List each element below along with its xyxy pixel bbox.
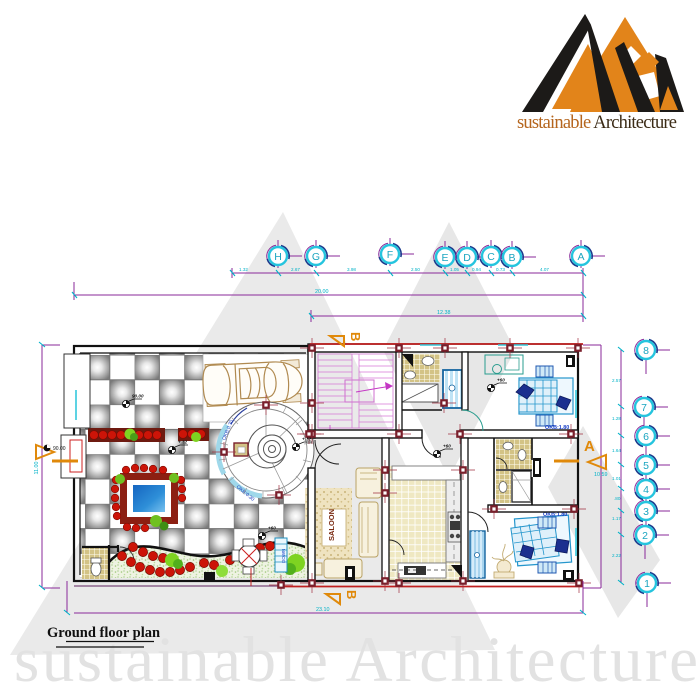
svg-text:3.98: 3.98 [347, 267, 356, 272]
svg-text:B: B [348, 332, 363, 341]
svg-text:2.67: 2.67 [291, 267, 300, 272]
svg-text:+60: +60 [497, 378, 505, 383]
svg-text:1.64: 1.64 [612, 448, 621, 453]
svg-text:0.94: 0.94 [472, 267, 481, 272]
svg-text:.80: .80 [614, 496, 621, 501]
svg-text:D: D [463, 252, 471, 264]
svg-text:10.59: 10.59 [594, 472, 608, 478]
svg-text:7: 7 [641, 402, 647, 414]
svg-text:H: H [274, 251, 282, 263]
svg-text:2.57: 2.57 [612, 378, 621, 383]
svg-text:11.00: 11.00 [34, 461, 40, 474]
svg-text:B: B [508, 252, 515, 264]
svg-text:A: A [577, 251, 584, 263]
svg-text:1: 1 [644, 578, 650, 590]
svg-text:90.00: 90.00 [132, 394, 144, 399]
svg-text:2.50: 2.50 [411, 267, 420, 272]
svg-text:2.22: 2.22 [612, 553, 621, 558]
svg-text:1.01: 1.01 [612, 476, 621, 481]
svg-text:4.07: 4.07 [540, 267, 549, 272]
svg-text:23.10: 23.10 [316, 607, 330, 613]
svg-text:Ground floor plan: Ground floor plan [47, 625, 160, 641]
svg-text:sustainable Architecture: sustainable Architecture [517, 113, 677, 133]
svg-text:1.05: 1.05 [450, 267, 459, 272]
svg-text:A: A [584, 438, 595, 455]
svg-text:+60: +60 [268, 526, 276, 531]
svg-text:1.17: 1.17 [612, 516, 621, 521]
svg-text:C: C [487, 251, 495, 263]
svg-text:90.00: 90.00 [53, 446, 66, 452]
svg-text:G: G [312, 251, 320, 263]
svg-text:SALOON: SALOON [327, 509, 336, 541]
svg-text:20.00: 20.00 [315, 289, 329, 295]
svg-text:3: 3 [643, 506, 649, 518]
svg-text:B: B [344, 590, 359, 599]
svg-text:E: E [441, 252, 448, 264]
svg-text:+.32: +.32 [178, 440, 188, 445]
svg-text:OKB:1.80: OKB:1.80 [543, 512, 567, 518]
svg-text:12.38: 12.38 [437, 310, 451, 316]
svg-text:+.32: +.32 [302, 437, 312, 442]
svg-text:6: 6 [643, 431, 649, 443]
svg-text:5: 5 [643, 460, 649, 472]
svg-text:8: 8 [643, 345, 649, 357]
svg-text:+60: +60 [443, 444, 451, 449]
svg-text:DOWN: DOWN [281, 549, 286, 563]
svg-text:4: 4 [643, 484, 649, 496]
svg-text:2: 2 [642, 530, 648, 542]
svg-text:1.32: 1.32 [239, 267, 248, 272]
svg-text:0.73: 0.73 [496, 267, 505, 272]
svg-text:1.28: 1.28 [612, 416, 621, 421]
svg-text:F: F [387, 249, 393, 261]
